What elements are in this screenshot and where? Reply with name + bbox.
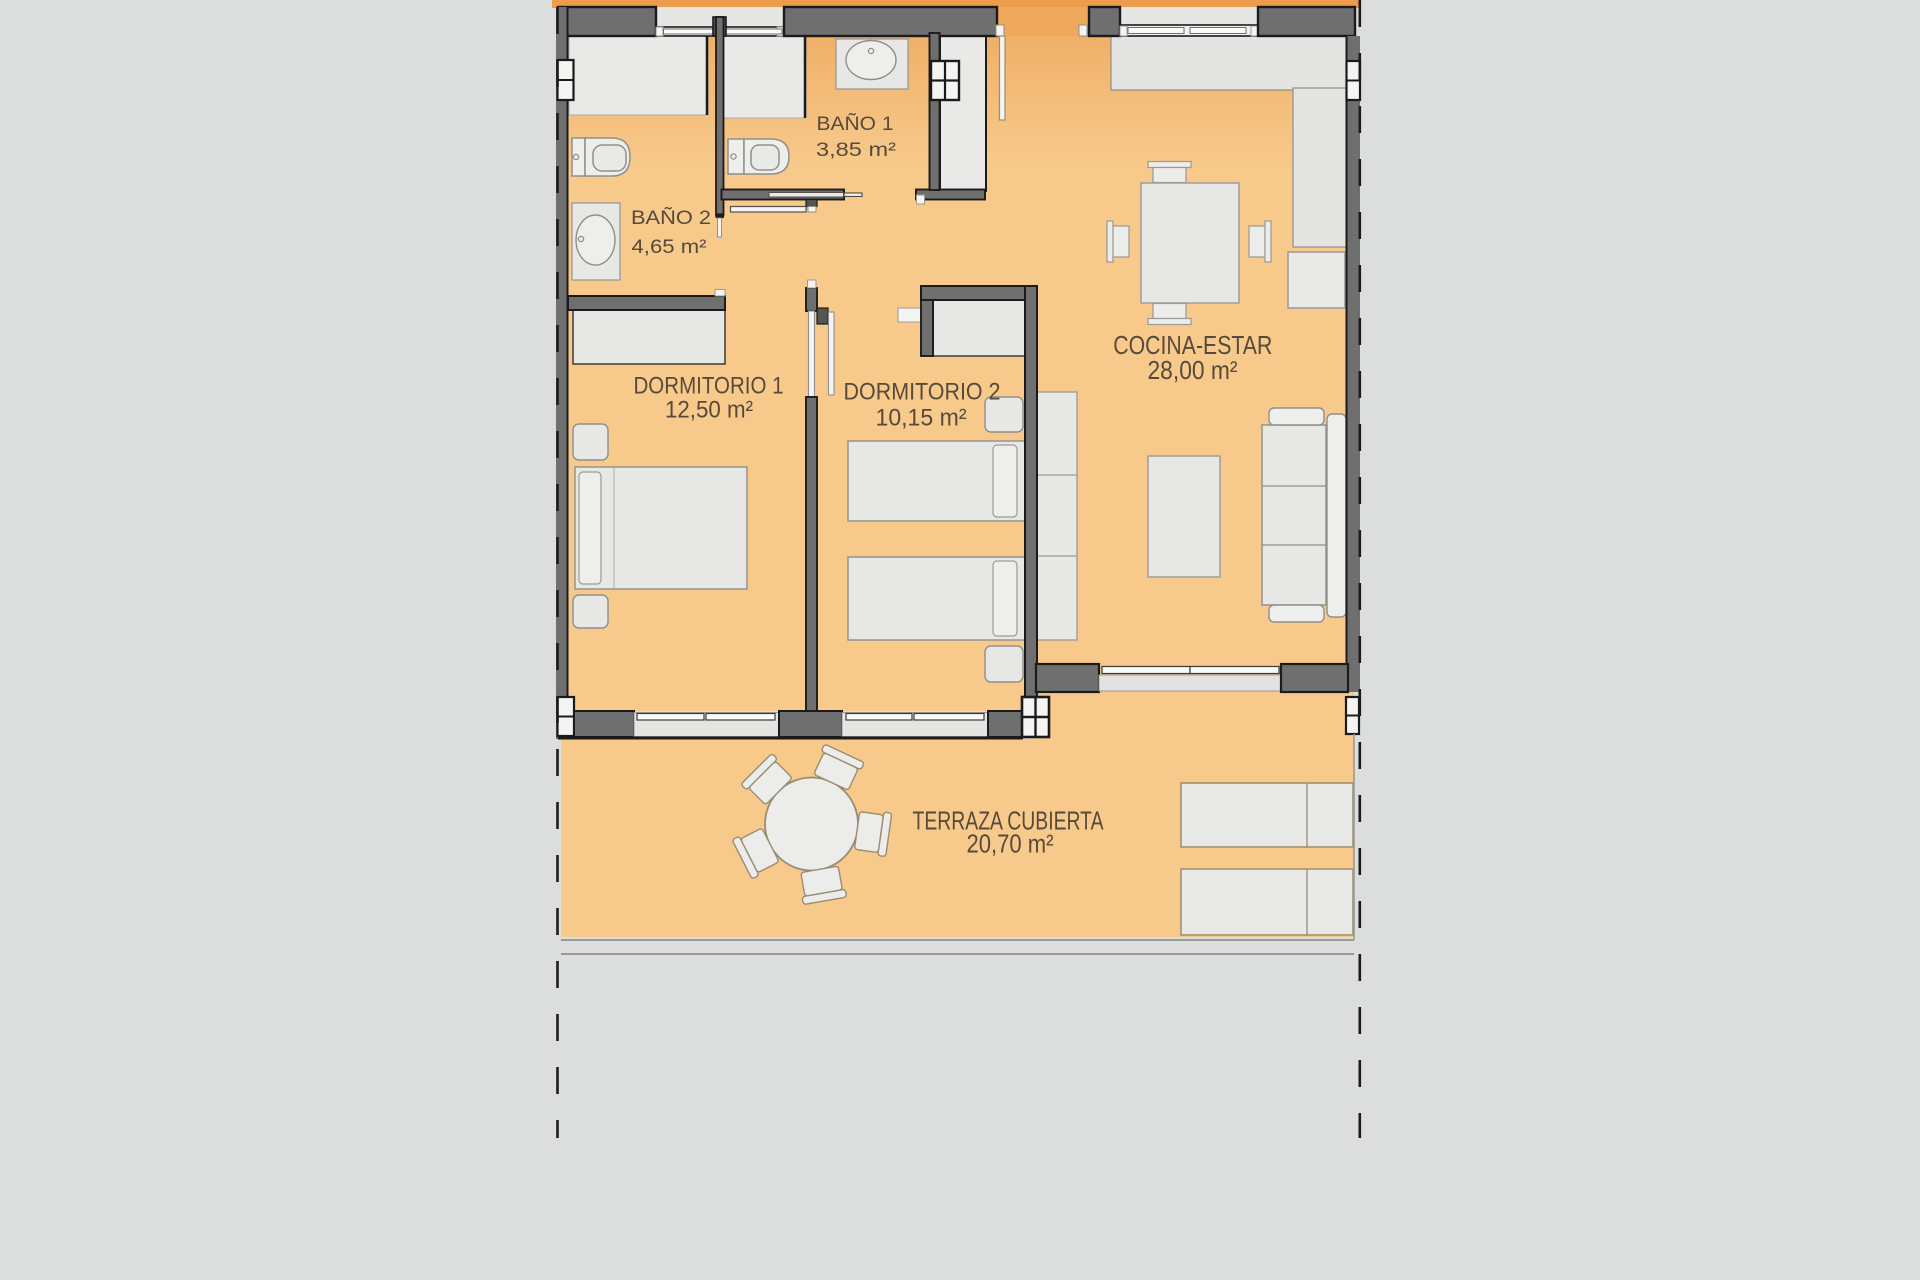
svg-text:DORMITORIO 2: DORMITORIO 2 [844, 379, 1001, 406]
svg-text:12,50 m²: 12,50 m² [665, 397, 753, 424]
svg-text:10,15 m²: 10,15 m² [876, 405, 967, 432]
svg-text:BAÑO 1: BAÑO 1 [817, 111, 894, 135]
svg-text:BAÑO 2: BAÑO 2 [631, 205, 711, 229]
svg-text:DORMITORIO 1: DORMITORIO 1 [634, 373, 784, 400]
svg-text:28,00 m²: 28,00 m² [1148, 355, 1238, 385]
svg-text:3,85 m²: 3,85 m² [816, 139, 897, 161]
svg-text:4,65 m²: 4,65 m² [632, 236, 708, 258]
svg-text:20,70 m²: 20,70 m² [967, 829, 1054, 859]
